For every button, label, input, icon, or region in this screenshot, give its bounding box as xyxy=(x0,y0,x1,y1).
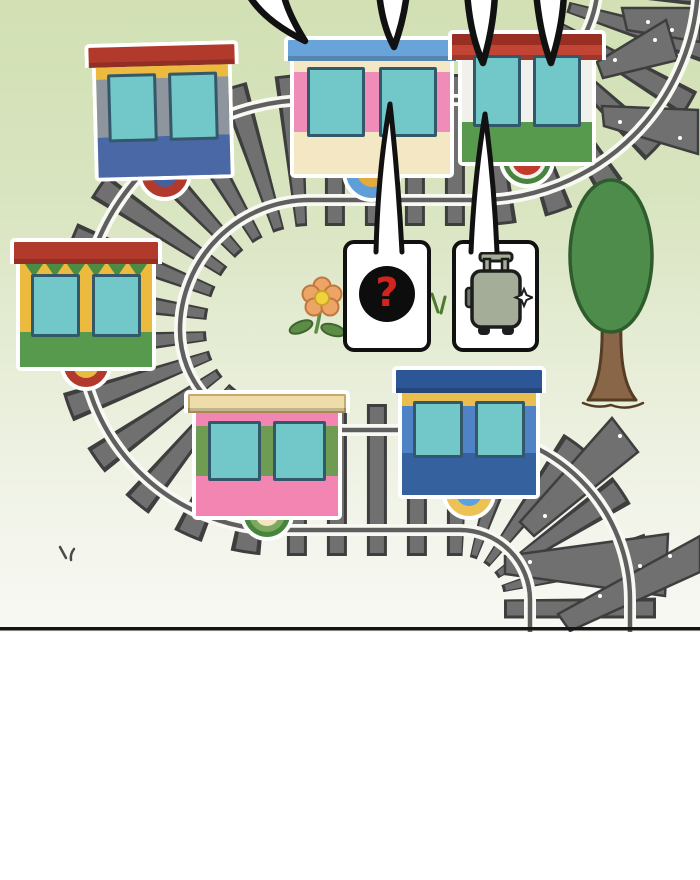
comic-panel: ? xyxy=(0,0,700,880)
flower-center xyxy=(315,291,329,305)
question-mark: ? xyxy=(375,273,398,313)
panel-gutter xyxy=(0,631,700,880)
question-circle: ? xyxy=(359,266,415,322)
speech-bubble-suitcase xyxy=(452,240,539,352)
suitcase-icon xyxy=(459,250,533,342)
speech-bubble-question: ? xyxy=(343,240,431,352)
panel-divider-line xyxy=(0,627,700,631)
tree-canopy xyxy=(570,180,652,332)
